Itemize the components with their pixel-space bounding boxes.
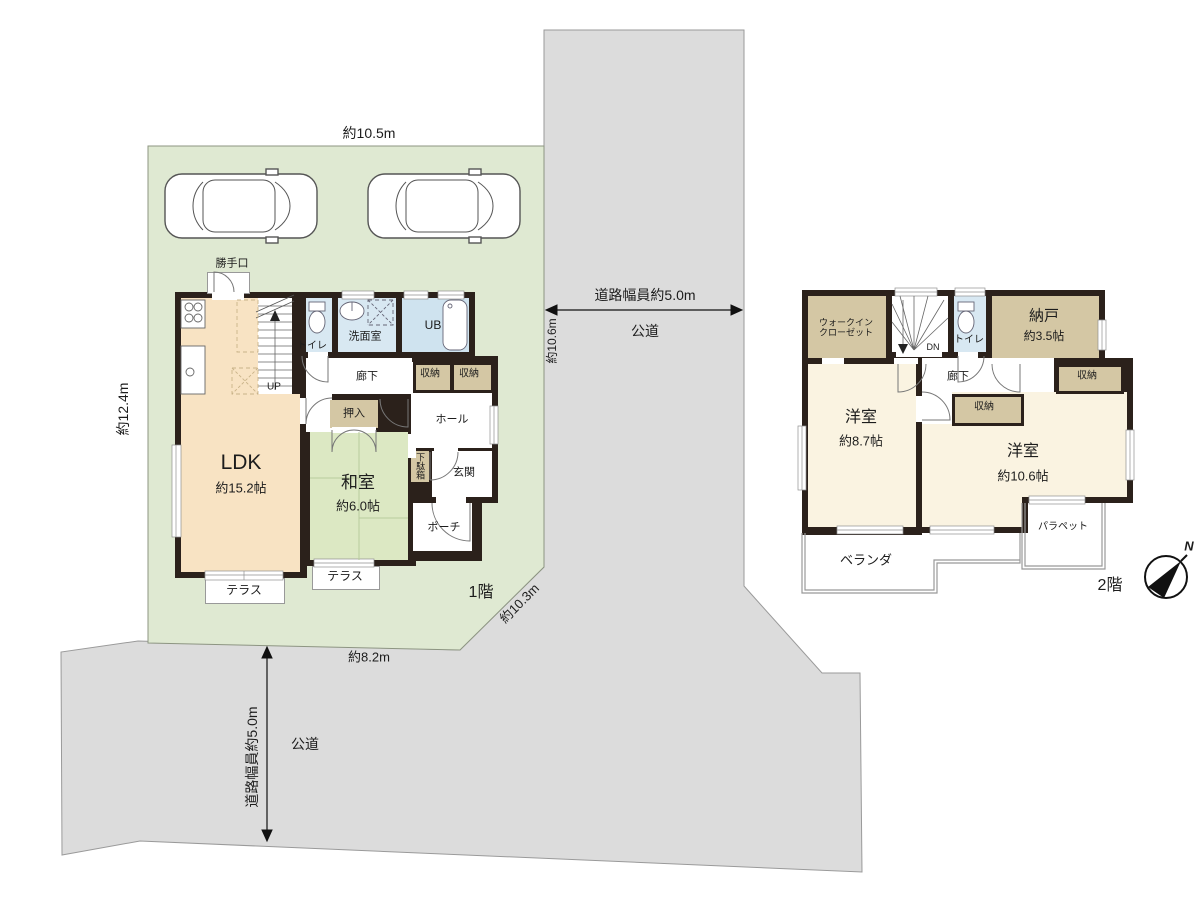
f1-washitsu-entry	[306, 394, 332, 432]
label-compass-north: N	[1184, 540, 1193, 555]
floor-plan-canvas: 約10.5m 約12.4m 約10.3m 約8.2m 道路幅員約5.0m 公道 …	[0, 0, 1200, 900]
label-veranda: ベランダ	[840, 554, 892, 569]
label-getabako: 下駄箱	[415, 453, 425, 480]
bottom-road-width-label: 道路幅員約5.0m	[244, 706, 260, 807]
label-washroom: 洗面室	[349, 331, 382, 344]
label-toilet-1f: トイレ	[297, 340, 327, 352]
label-storage-2f-a: 収納	[1077, 370, 1097, 382]
label-ldk: LDK	[221, 451, 262, 475]
label-storage-1f-a: 収納	[420, 368, 440, 380]
right-road-type-label: 公道	[631, 323, 659, 339]
label-washitsu-size: 約6.0帖	[336, 500, 380, 515]
label-stairs-up: UP	[267, 381, 281, 393]
label-storage-2f-b: 収納	[974, 401, 994, 413]
label-toilet-2f: トイレ	[954, 334, 984, 346]
right-road-length-label: 約10.6m	[546, 318, 560, 363]
label-corridor-1f: 廊下	[356, 371, 378, 384]
label-floor2: 2階	[1098, 577, 1123, 595]
room-corridor-2f-stub	[922, 358, 952, 424]
label-bedroom-a: 洋室	[845, 409, 877, 427]
dim-bottom-label: 約8.2m	[348, 651, 390, 666]
label-wic: ウォークイン クローゼット	[819, 318, 873, 339]
label-ldk-size: 約15.2帖	[215, 482, 266, 497]
room-bedroom-b-ext	[922, 497, 1022, 527]
f1-stairs	[258, 298, 292, 394]
f1-wall-porch-south	[410, 551, 482, 561]
label-porch: ポーチ	[428, 522, 461, 535]
label-storage-1f-b: 収納	[459, 368, 479, 380]
label-bath-ub: UB	[425, 319, 442, 333]
label-hall: ホール	[436, 414, 469, 427]
room-washroom	[338, 298, 396, 352]
room-washitsu	[310, 432, 408, 560]
label-oshiire: 押入	[343, 408, 365, 421]
bottom-road-type-label: 公道	[291, 736, 319, 752]
label-corridor-2f: 廊下	[947, 371, 969, 384]
label-washitsu: 和室	[341, 473, 375, 493]
f2-stairs	[892, 296, 948, 352]
label-genkan: 玄関	[453, 467, 475, 480]
dim-top-label: 約10.5m	[343, 125, 396, 141]
label-terrace-a: テラス	[226, 584, 262, 598]
right-road-width-label: 道路幅員約5.0m	[594, 287, 695, 303]
label-katteguchi: 勝手口	[216, 258, 249, 271]
label-parapet: パラペット	[1038, 521, 1088, 533]
label-terrace-b: テラス	[327, 570, 363, 584]
room-nando	[992, 296, 1099, 358]
label-nando-size: 約3.5帖	[1024, 330, 1065, 344]
label-bedroom-b-size: 約10.6帖	[997, 470, 1048, 485]
label-bedroom-b: 洋室	[1007, 443, 1039, 461]
label-nando: 納戸	[1029, 307, 1059, 324]
dim-left-label: 約12.4m	[115, 383, 131, 436]
label-stairs-dn: DN	[927, 342, 940, 352]
label-bedroom-a-size: 約8.7帖	[839, 435, 883, 450]
label-floor1: 1階	[469, 584, 494, 602]
katteguchi-step	[207, 272, 250, 294]
